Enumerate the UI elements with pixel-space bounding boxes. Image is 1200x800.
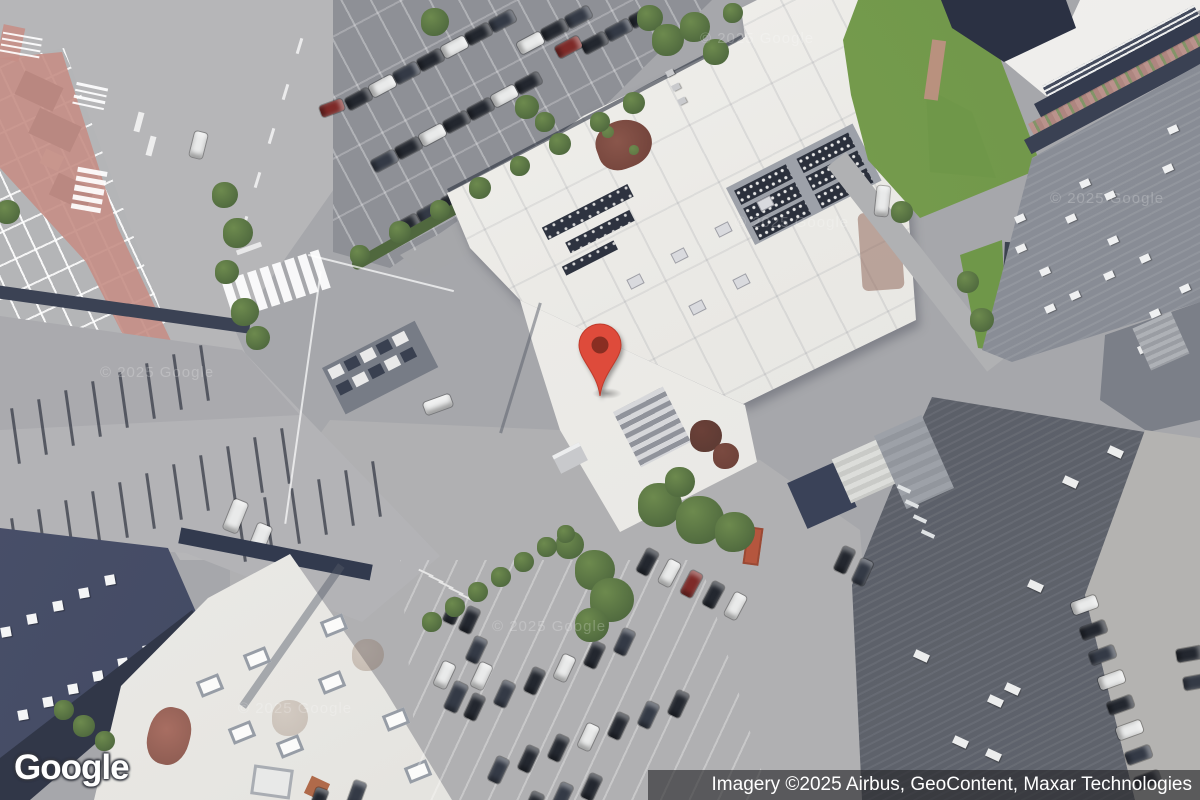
hvac-unit bbox=[336, 379, 353, 395]
hvac-unit bbox=[384, 355, 401, 371]
map-pin-hole bbox=[592, 337, 609, 354]
hvac-unit bbox=[375, 339, 392, 355]
attribution-text: Imagery ©2025 Airbus, GeoContent, Maxar … bbox=[712, 774, 1192, 796]
google-logo[interactable]: Google bbox=[14, 748, 129, 788]
tree bbox=[469, 177, 491, 199]
tree bbox=[549, 133, 571, 155]
tree bbox=[73, 715, 95, 737]
tree bbox=[623, 92, 645, 114]
hvac-unit bbox=[400, 347, 417, 363]
attribution-bar: Imagery ©2025 Airbus, GeoContent, Maxar … bbox=[648, 770, 1200, 800]
hvac-unit bbox=[368, 363, 385, 379]
tree bbox=[957, 271, 979, 293]
hvac-unit bbox=[392, 331, 409, 347]
hvac-unit bbox=[352, 371, 369, 387]
tree bbox=[891, 201, 913, 223]
map-pin-body[interactable] bbox=[579, 324, 621, 396]
hvac-unit bbox=[343, 355, 360, 371]
hvac-unit bbox=[327, 363, 344, 379]
hvac-unit bbox=[359, 347, 376, 363]
imagery-layers bbox=[0, 0, 1200, 800]
map-pin[interactable] bbox=[576, 322, 624, 400]
tree bbox=[389, 221, 411, 243]
satellite-map-viewport[interactable]: © 2025 Google © 2025 Google © 2025 Googl… bbox=[0, 0, 1200, 800]
